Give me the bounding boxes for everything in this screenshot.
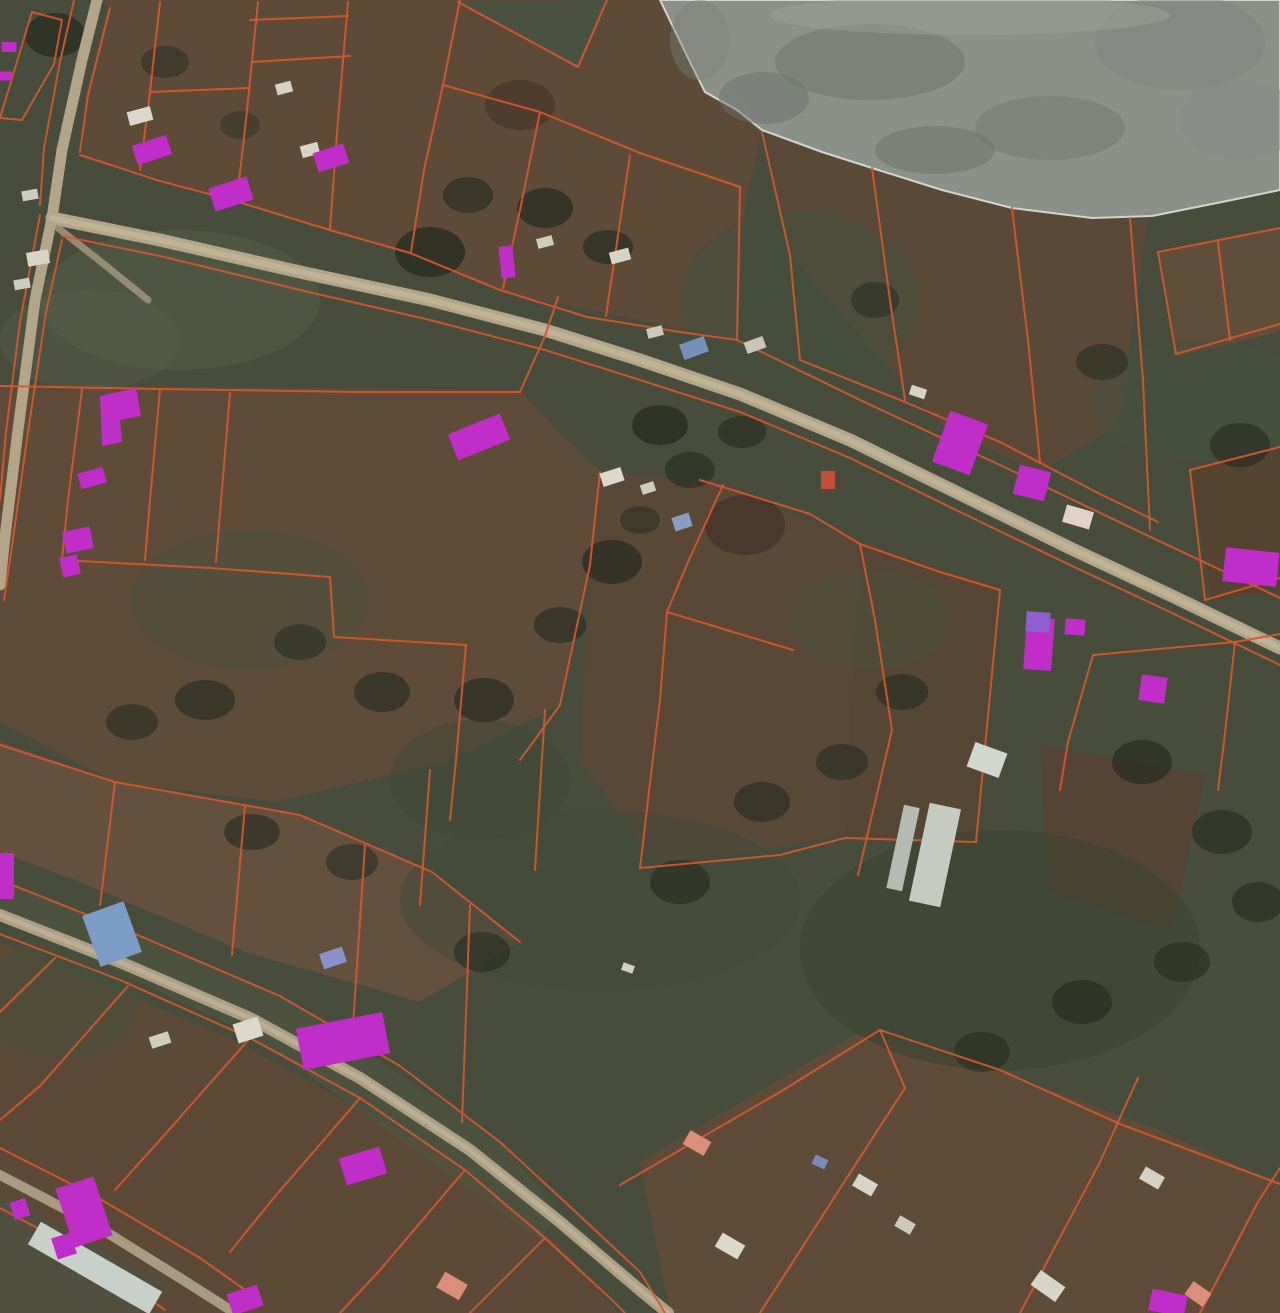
tree-canopy [632, 405, 688, 445]
highlighted-building[interactable] [1025, 611, 1050, 633]
building-roof [821, 471, 835, 489]
tree-canopy [25, 13, 85, 57]
tree-canopy [620, 506, 660, 534]
tree-canopy [534, 607, 586, 643]
highlighted-building[interactable] [1064, 618, 1085, 635]
tree-canopy [1192, 810, 1252, 854]
tree-canopy [224, 814, 280, 850]
highlighted-building[interactable] [1138, 674, 1167, 703]
cloud-shadow [875, 126, 995, 174]
tree-canopy [1154, 942, 1210, 982]
tree-canopy [326, 844, 378, 880]
cloud-shadow [719, 72, 809, 124]
cloud-shadow [670, 0, 730, 80]
tree-canopy [485, 80, 555, 130]
tree-canopy [274, 624, 326, 660]
tree-canopy [454, 932, 510, 972]
highlighted-building[interactable] [0, 72, 12, 81]
tree-canopy [1210, 423, 1270, 467]
tree-canopy [954, 1032, 1010, 1072]
tree-canopy [175, 680, 235, 720]
tree-canopy [1112, 740, 1172, 784]
highlighted-building[interactable] [1222, 547, 1279, 586]
tree-canopy [734, 782, 790, 822]
tree-canopy [106, 704, 158, 740]
tree-canopy [1076, 344, 1128, 380]
tree-canopy [816, 744, 868, 780]
vegetation-patch [790, 570, 950, 670]
highlighted-building[interactable] [0, 853, 14, 899]
map-viewport [0, 0, 1280, 1313]
tree-canopy [1052, 980, 1112, 1024]
cloud-shadow [975, 96, 1125, 160]
tree-canopy [705, 495, 785, 555]
tree-canopy [517, 188, 573, 228]
map-canvas[interactable] [0, 0, 1280, 1313]
tree-canopy [220, 111, 260, 139]
tree-canopy [354, 672, 410, 712]
tree-canopy [141, 46, 189, 78]
highlighted-building[interactable] [2, 42, 17, 52]
vegetation-patch [130, 530, 370, 670]
tree-canopy [443, 177, 493, 213]
